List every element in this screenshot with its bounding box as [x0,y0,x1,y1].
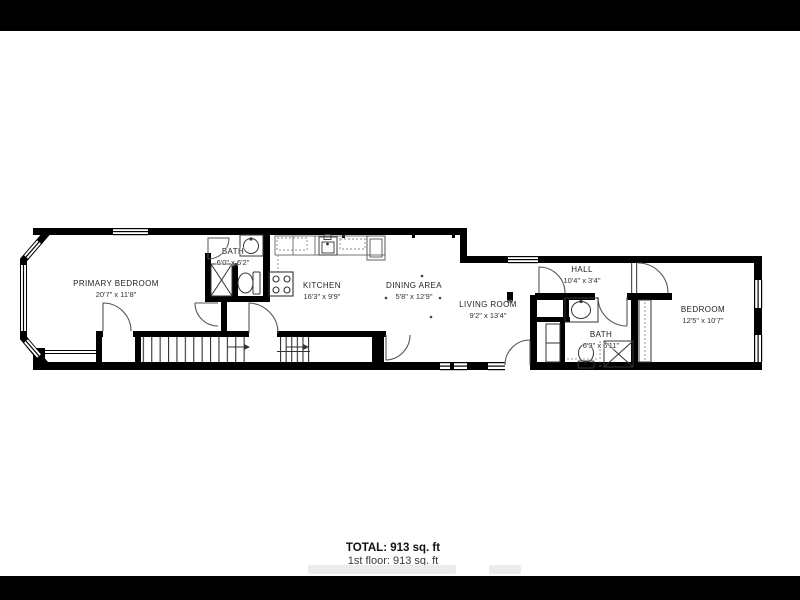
kitchen-sink-icon [319,235,337,256]
fridge-icon [367,236,385,260]
room-label-bedroom: BEDROOM 12'5" x 10'7" [681,304,725,326]
room-label-primary-bedroom: PRIMARY BEDROOM 20'7" x 11'8" [73,278,159,300]
room-label-kitchen: KITCHEN 16'3" x 9'9" [303,280,341,302]
room-label-bath-2: BATH 6'3" x 6'11" [583,329,619,351]
letterbox-bottom [0,576,800,600]
hall-wardrobe [546,324,560,362]
watermark [489,565,521,574]
watermark [308,565,456,574]
room-dims: 10'4" x 3'4" [564,276,601,286]
room-name: BEDROOM [681,304,725,316]
total-area-text: TOTAL: 913 sq. ft [346,541,440,555]
room-name: BATH [583,329,619,341]
room-name: HALL [564,264,601,276]
shower-icon [211,264,232,296]
room-dims: 16'3" x 9'9" [303,292,341,302]
room-label-dining-area: DINING AREA 5'8" x 12'9" [386,280,442,302]
room-dims: 12'5" x 10'7" [681,316,725,326]
room-dims: 6'3" x 6'11" [583,341,619,351]
toilet-icon [238,272,260,294]
area-summary: TOTAL: 913 sq. ft 1st floor: 913 sq. ft [346,541,440,568]
room-label-living-room: LIVING ROOM 9'2" x 13'4" [459,299,517,321]
floor-plan-page: PRIMARY BEDROOM 20'7" x 11'8" BATH 6'0" … [0,0,800,600]
room-dims: 6'0" x 6'2" [217,258,250,268]
bedroom-closet [639,300,651,362]
staircase [140,337,310,362]
bay-window [24,232,49,368]
room-name: PRIMARY BEDROOM [73,278,159,290]
room-name: DINING AREA [386,280,442,292]
stove-icon [269,272,293,296]
room-name: KITCHEN [303,280,341,292]
room-label-hall: HALL 10'4" x 3'4" [564,264,601,286]
room-name: LIVING ROOM [459,299,517,311]
room-name: BATH [217,246,250,258]
room-label-bath-1: BATH 6'0" x 6'2" [217,246,250,268]
room-dims: 9'2" x 13'4" [459,311,517,321]
letterbox-top [0,0,800,31]
room-dims: 20'7" x 11'8" [73,290,159,300]
room-dims: 5'8" x 12'9" [386,292,442,302]
